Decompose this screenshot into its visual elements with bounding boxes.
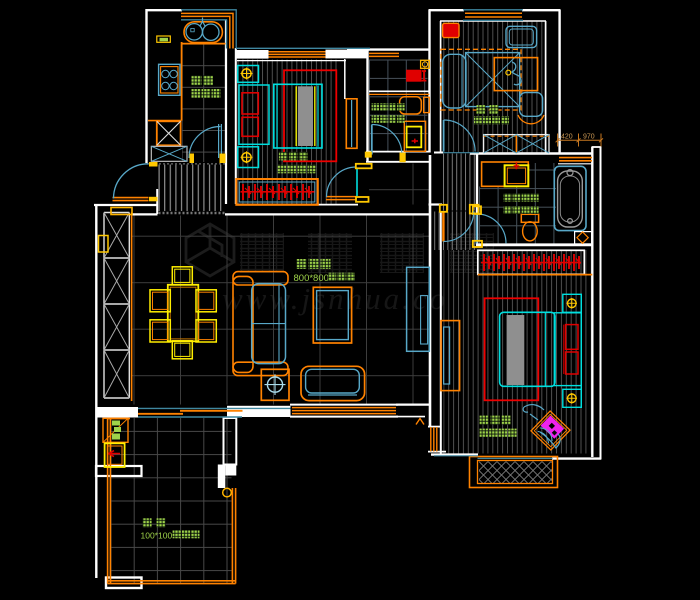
svg-text:970: 970: [583, 134, 595, 141]
svg-text:100*100: 100*100: [141, 531, 173, 541]
svg-text:800*800: 800*800: [294, 273, 329, 284]
svg-text:420: 420: [561, 134, 573, 141]
